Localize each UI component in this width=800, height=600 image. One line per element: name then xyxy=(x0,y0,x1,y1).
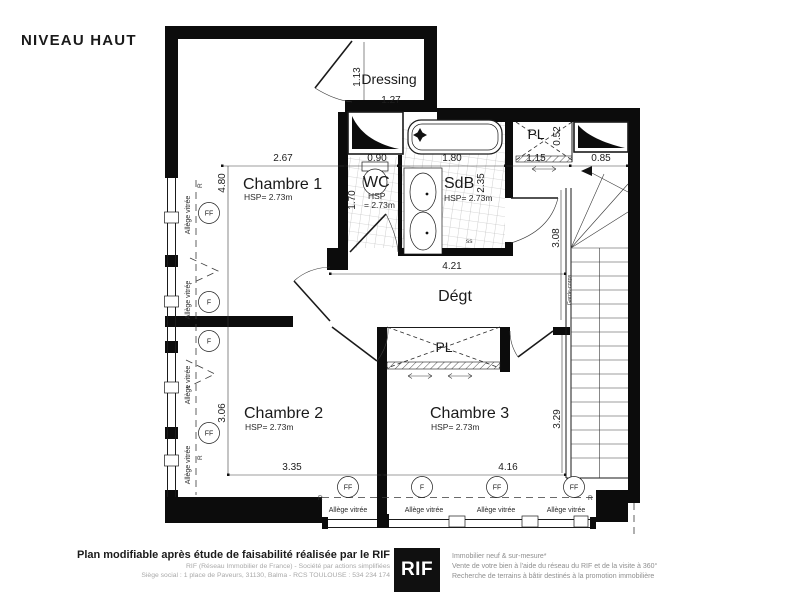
ff-window-badge: FF xyxy=(338,477,359,498)
dim-palier-width: 1.15 xyxy=(526,153,546,164)
closet-top: PL 0.52 xyxy=(516,122,572,172)
room-label-dressing: Dressing xyxy=(361,71,416,87)
svg-text:FF: FF xyxy=(205,431,214,438)
r-mark: R xyxy=(197,455,204,460)
dim-stairs-height: 3.08 xyxy=(551,228,562,248)
svg-text:FF: FF xyxy=(205,211,214,218)
ff-window-badge: FF xyxy=(487,477,508,498)
room-label-degt: Dégt xyxy=(438,288,472,305)
footer-company-line: RIF (Réseau Immobilier de France) - Soci… xyxy=(58,562,390,571)
sill-label: Allège vitrée xyxy=(185,196,192,235)
f-window-badge: F xyxy=(412,477,433,498)
svg-text:F: F xyxy=(420,485,424,492)
sdb-ss-label: ss xyxy=(466,238,473,245)
ff-window-badge: FF xyxy=(564,477,585,498)
hsp-sdb: HSP= 2.73m xyxy=(444,193,492,203)
room-label-chambre2: Chambre 2 xyxy=(244,405,323,422)
svg-text:F: F xyxy=(207,339,211,346)
r-mark: R xyxy=(588,495,593,502)
dim-closet-depth: 0.52 xyxy=(552,126,563,146)
hsp-chambre1: HSP= 2.73m xyxy=(244,192,292,202)
ff-window-badge: FF xyxy=(199,423,220,444)
svg-text:FF: FF xyxy=(493,485,502,492)
door-chambre3 xyxy=(510,331,553,357)
rif-logo: RIF xyxy=(394,548,440,592)
dim-wc-width: 0.90 xyxy=(367,153,387,164)
sill-label: Allège vitrée xyxy=(185,446,192,485)
dim-chambre2-height: 3.06 xyxy=(217,403,228,423)
svg-text:FF: FF xyxy=(344,485,353,492)
dim-chambre3-height: 3.29 xyxy=(552,409,563,429)
footer-service-line: Recherche de terrains à bâtir destinés à… xyxy=(452,572,732,582)
footer-disclaimer: Plan modifiable après étude de faisabili… xyxy=(58,549,390,580)
room-label-sdb: SdB xyxy=(444,175,474,192)
stair-direction-arrow xyxy=(581,166,592,176)
footer-service-line: Vente de votre bien à l'aide du réseau d… xyxy=(452,562,732,572)
closet-middle: PL xyxy=(387,327,500,379)
dim-sdb-width: 1.80 xyxy=(442,153,462,164)
dim-degt-width: 4.21 xyxy=(442,261,462,272)
ff-window-badge: FF xyxy=(199,203,220,224)
dim-dressing-width: 1.27 xyxy=(381,95,401,106)
dim-chambre2-width: 3.35 xyxy=(282,462,302,473)
floor-plan-page: NIVEAU HAUT xyxy=(0,0,800,600)
r-mark: R xyxy=(197,183,204,188)
floor-plan-drawing: PL 0.52 PL xyxy=(0,0,800,600)
door-chambre1 xyxy=(294,267,330,321)
footer-services: Immobilier neuf & sur-mesure* Vente de v… xyxy=(452,552,732,582)
dim-wc-height: 1.70 xyxy=(347,190,358,210)
room-label-chambre3: Chambre 3 xyxy=(430,405,509,422)
f-window-badge: F xyxy=(199,331,220,352)
vanity-double-sink xyxy=(404,168,442,254)
footer-bold-line: Plan modifiable après étude de faisabili… xyxy=(58,549,390,562)
walls xyxy=(165,26,640,523)
room-label-chambre1: Chambre 1 xyxy=(243,176,322,193)
dim-stairs-top-width: 0.85 xyxy=(591,153,611,164)
closet-middle-label: PL xyxy=(435,339,452,355)
sill-label: Allège vitrée xyxy=(477,507,516,514)
dim-chambre1-width: 2.67 xyxy=(273,153,293,164)
dim-chambre1-height: 4.80 xyxy=(217,173,228,193)
footer-address-line: Siège social : 1 place de Paveurs, 31130… xyxy=(58,571,390,580)
room-label-wc: WC xyxy=(363,174,390,191)
sill-label: Allège vitrée xyxy=(185,366,192,405)
hsp-chambre2: HSP= 2.73m xyxy=(245,422,293,432)
dim-sdb-height: 2.35 xyxy=(476,173,487,193)
door-dressing xyxy=(315,41,352,102)
hsp-wc-line2: = 2.73m xyxy=(364,200,395,210)
rif-logo-text: RIF xyxy=(401,559,433,581)
sill-label: Allège vitrée xyxy=(405,507,444,514)
dim-chambre3-width: 4.16 xyxy=(498,462,518,473)
sill-label: Allège vitrée xyxy=(185,281,192,320)
r-mark: R xyxy=(318,495,323,502)
svg-text:FF: FF xyxy=(570,485,579,492)
bathtub xyxy=(408,120,502,154)
sill-label: Allège vitrée xyxy=(329,507,368,514)
f-window-badge: F xyxy=(199,292,220,313)
sill-label: Allège vitrée xyxy=(547,507,586,514)
hsp-chambre3: HSP= 2.73m xyxy=(431,422,479,432)
svg-text:F: F xyxy=(207,300,211,307)
closet-top-label: PL xyxy=(527,126,544,142)
footer-service-line: Immobilier neuf & sur-mesure* xyxy=(452,552,732,562)
guardrail-label: Garde-corps xyxy=(567,274,573,305)
